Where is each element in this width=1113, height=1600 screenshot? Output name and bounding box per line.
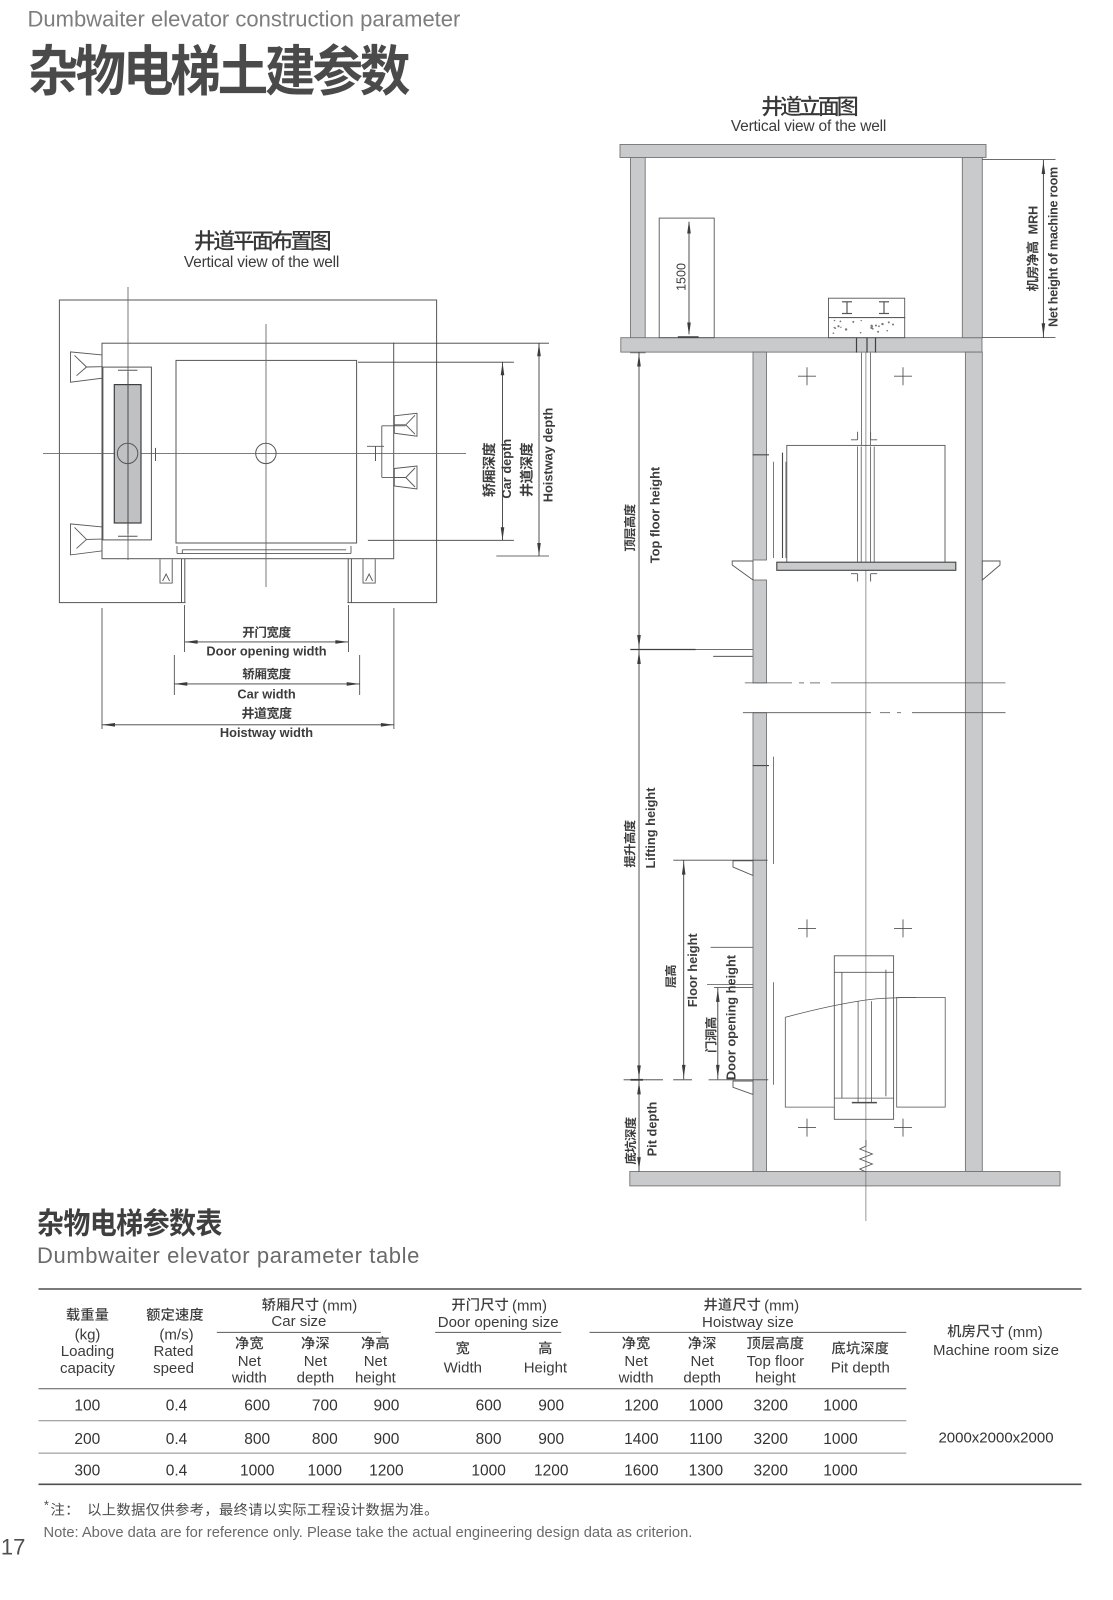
svg-text:Pit depth: Pit depth	[831, 1359, 890, 1376]
svg-text:1000: 1000	[823, 1431, 858, 1448]
svg-text:900: 900	[538, 1431, 564, 1448]
svg-text:Loading: Loading	[61, 1343, 114, 1360]
svg-text:600: 600	[476, 1398, 502, 1415]
svg-text:Net: Net	[364, 1353, 388, 1370]
svg-text:Dumbwaiter elevator constructi: Dumbwaiter elevator construction paramet…	[28, 6, 461, 31]
svg-text:height: height	[755, 1369, 797, 1386]
svg-text:Rated: Rated	[153, 1343, 193, 1360]
svg-text:3200: 3200	[753, 1398, 788, 1415]
svg-text:1000: 1000	[823, 1398, 858, 1415]
svg-text:Top floor: Top floor	[747, 1353, 805, 1370]
svg-text:(mm): (mm)	[512, 1297, 547, 1314]
svg-text:1000: 1000	[308, 1463, 343, 1480]
svg-text:Vertical view of the well: Vertical view of the well	[184, 254, 339, 271]
svg-text:800: 800	[476, 1431, 502, 1448]
svg-text:600: 600	[244, 1398, 270, 1415]
svg-text:MRH: MRH	[1026, 206, 1041, 235]
svg-text:3200: 3200	[753, 1463, 788, 1480]
svg-text:Door opening height: Door opening height	[724, 954, 739, 1080]
svg-text:depth: depth	[683, 1369, 721, 1386]
svg-text:*: *	[44, 1498, 49, 1513]
svg-text:0.4: 0.4	[166, 1398, 188, 1415]
svg-text:(mm): (mm)	[764, 1297, 799, 1314]
svg-text:300: 300	[74, 1463, 100, 1480]
svg-text:Dumbwaiter elevator parameter: Dumbwaiter elevator parameter table	[37, 1243, 420, 1268]
svg-text:1000: 1000	[240, 1463, 275, 1480]
svg-text:Height: Height	[524, 1359, 568, 1376]
svg-text:capacity: capacity	[60, 1360, 116, 1377]
svg-text:(m/s): (m/s)	[159, 1326, 193, 1343]
svg-text:Net: Net	[691, 1353, 715, 1370]
svg-text:17: 17	[1, 1535, 25, 1560]
svg-text:900: 900	[373, 1398, 399, 1415]
svg-text:1200: 1200	[534, 1463, 569, 1480]
svg-text:900: 900	[373, 1431, 399, 1448]
svg-text:Top floor height: Top floor height	[648, 466, 663, 563]
svg-text:Pit depth: Pit depth	[644, 1101, 659, 1156]
svg-text:1000: 1000	[471, 1463, 506, 1480]
svg-text:height: height	[355, 1369, 397, 1386]
svg-text:3200: 3200	[753, 1431, 788, 1448]
svg-text:0.4: 0.4	[166, 1431, 188, 1448]
svg-text:1300: 1300	[689, 1463, 724, 1480]
svg-text:Note: Above data are for refer: Note: Above data are for reference only.…	[44, 1525, 693, 1541]
svg-text:depth: depth	[297, 1369, 335, 1386]
svg-text:Net height of machine room: Net height of machine room	[1046, 167, 1060, 327]
svg-text:width: width	[231, 1369, 267, 1386]
svg-text:width: width	[618, 1369, 654, 1386]
svg-text:speed: speed	[153, 1360, 194, 1377]
svg-text:Floor height: Floor height	[685, 933, 700, 1008]
svg-text:Car width: Car width	[237, 687, 295, 702]
svg-text:Machine room size: Machine room size	[933, 1342, 1059, 1359]
svg-text:Door opening width: Door opening width	[206, 644, 326, 659]
svg-text:1200: 1200	[624, 1398, 659, 1415]
svg-text:2000x2000x2000: 2000x2000x2000	[938, 1429, 1053, 1446]
svg-text:1000: 1000	[823, 1463, 858, 1480]
svg-text:Car depth: Car depth	[499, 439, 514, 499]
svg-text:1600: 1600	[624, 1463, 659, 1480]
svg-text:1000: 1000	[689, 1398, 724, 1415]
svg-text:Hoistway size: Hoistway size	[702, 1314, 794, 1331]
svg-text:0.4: 0.4	[166, 1463, 188, 1480]
svg-text:Width: Width	[444, 1359, 482, 1376]
svg-text:1200: 1200	[369, 1463, 404, 1480]
svg-text:Car size: Car size	[271, 1313, 326, 1330]
svg-text:Net: Net	[304, 1353, 328, 1370]
svg-text:Door opening size: Door opening size	[438, 1314, 559, 1331]
svg-text:100: 100	[74, 1398, 100, 1415]
svg-text:1100: 1100	[689, 1431, 723, 1448]
svg-text:(kg): (kg)	[75, 1326, 101, 1343]
svg-text:(mm): (mm)	[322, 1297, 357, 1314]
svg-text:1500: 1500	[674, 263, 688, 291]
svg-text:Vertical view of the well: Vertical view of the well	[731, 118, 886, 135]
svg-text:200: 200	[74, 1431, 100, 1448]
svg-text:900: 900	[538, 1398, 564, 1415]
svg-text:Hoistway width: Hoistway width	[220, 725, 313, 740]
svg-text:(mm): (mm)	[1008, 1324, 1043, 1341]
svg-text:800: 800	[244, 1431, 270, 1448]
svg-text:800: 800	[312, 1431, 338, 1448]
svg-text:Lifting height: Lifting height	[643, 787, 658, 869]
svg-text:Net: Net	[238, 1353, 262, 1370]
svg-text:1400: 1400	[624, 1431, 659, 1448]
svg-text:Net: Net	[624, 1353, 648, 1370]
svg-text:Hoistway depth: Hoistway depth	[541, 408, 556, 503]
svg-text:700: 700	[312, 1398, 338, 1415]
